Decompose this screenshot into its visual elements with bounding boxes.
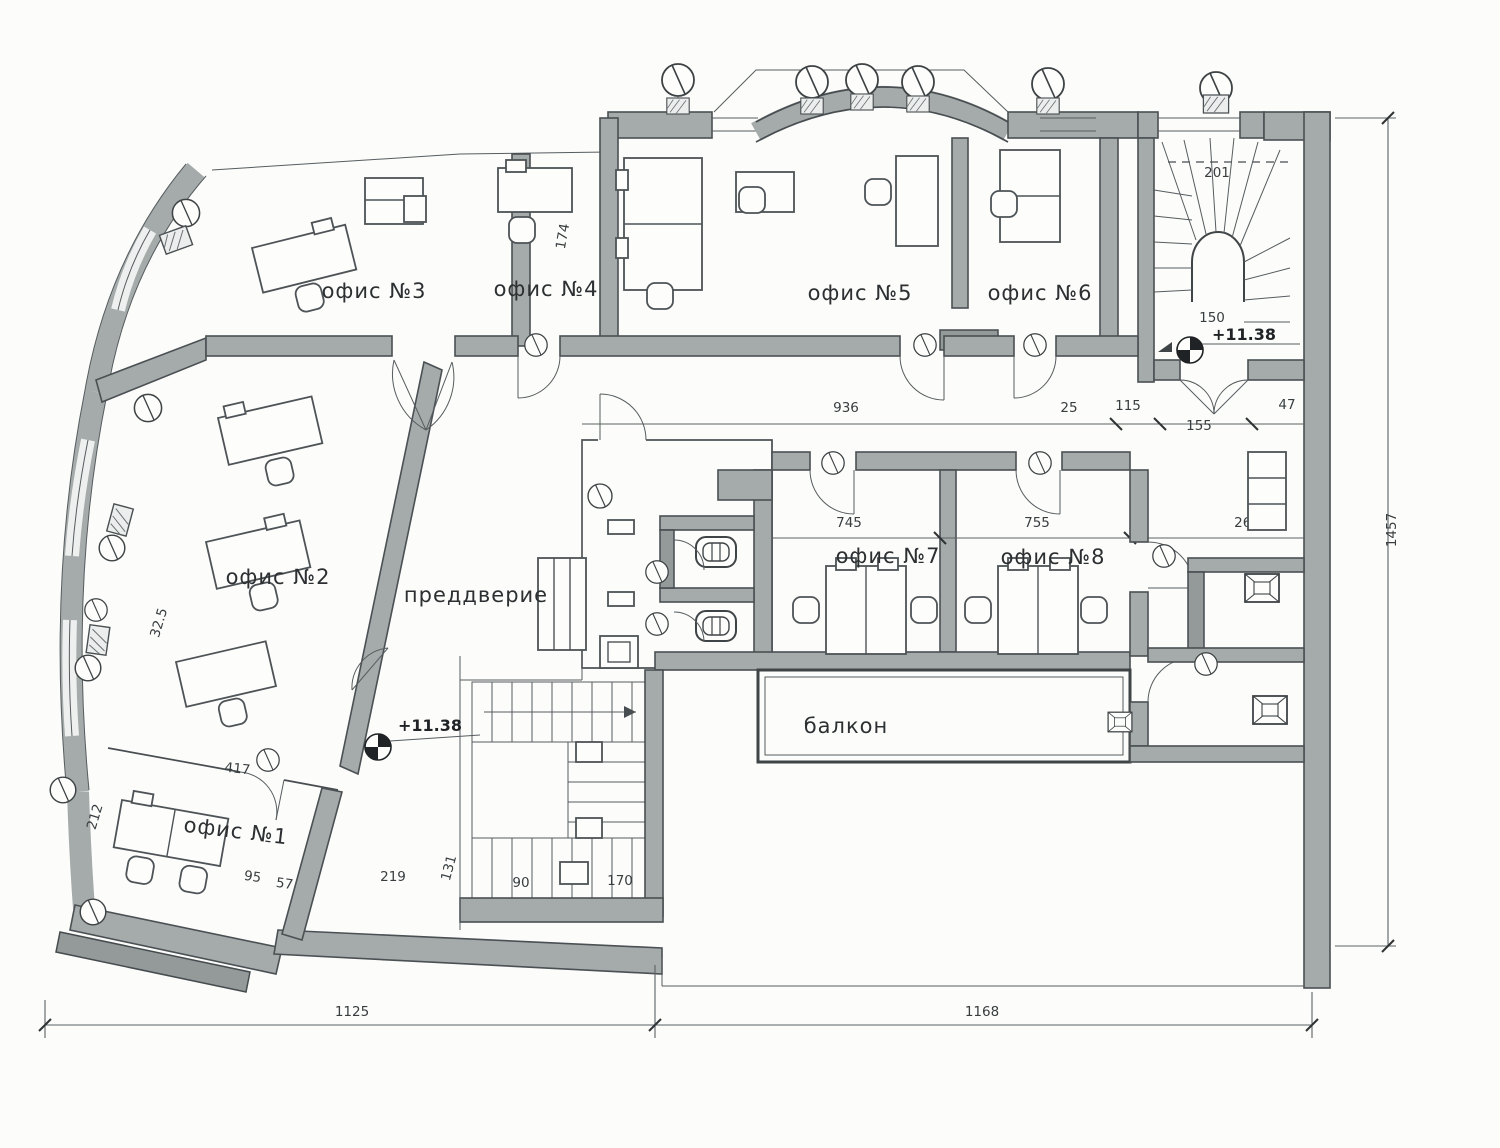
dim-bottom-right: 1168 xyxy=(965,1004,999,1020)
equipment-icon xyxy=(1108,712,1132,732)
grid-marker-icon xyxy=(1024,334,1046,356)
office1-wing: 417 212 95 57 xyxy=(50,748,342,940)
grid-marker-icon xyxy=(80,899,106,925)
right-wing xyxy=(1108,452,1304,762)
dim-stair-150: 150 xyxy=(1199,310,1225,326)
chair-icon xyxy=(865,179,891,205)
grid-marker-icon xyxy=(646,561,668,583)
room-label-balcony: балкон xyxy=(804,714,889,738)
dim-office7-width: 745 xyxy=(836,515,862,531)
chair-icon xyxy=(793,597,819,623)
elevation-hall-label: +11.38 xyxy=(398,716,462,735)
chair-icon xyxy=(509,217,535,243)
dim-174: 174 xyxy=(553,222,573,250)
floor-plan-drawing: 201 150 +11.38 936 25 115 155 47 xyxy=(0,0,1500,1148)
toilet-icon xyxy=(696,537,736,567)
wc-block xyxy=(582,394,772,668)
offices-7-8: 745 755 262 xyxy=(525,334,1304,670)
dim-bottom-left: 1125 xyxy=(335,1004,369,1020)
dim-155: 155 xyxy=(1186,418,1212,434)
grid-marker-icon xyxy=(914,334,936,356)
dim-office8-width: 755 xyxy=(1024,515,1050,531)
equipment-icon xyxy=(1245,574,1279,602)
chair-icon xyxy=(264,456,295,487)
room-label-vestibule: преддверие xyxy=(404,583,548,607)
room-label-office4: офис №4 xyxy=(494,277,599,301)
chair-icon xyxy=(1081,597,1107,623)
elevation-mark-icon xyxy=(1177,337,1203,363)
room-label-office6: офис №6 xyxy=(988,281,1093,305)
grid-marker-icon xyxy=(50,777,76,803)
grid-marker-icon xyxy=(1029,452,1051,474)
dim-47: 47 xyxy=(1278,397,1295,413)
grid-marker-icon xyxy=(1153,545,1175,567)
dim-stair-201: 201 xyxy=(1204,165,1230,181)
equipment-icon xyxy=(1253,696,1287,724)
chair-icon xyxy=(991,191,1017,217)
dim-131: 131 xyxy=(438,853,460,882)
grid-marker-icon xyxy=(75,655,101,681)
grid-marker-icon xyxy=(822,452,844,474)
chair-icon xyxy=(965,597,991,623)
hall-elevation-mark: +11.38 xyxy=(365,716,480,760)
floor-plan-canvas: 201 150 +11.38 936 25 115 155 47 xyxy=(0,0,1500,1148)
chair-icon xyxy=(911,597,937,623)
room-labels: офис №3 офис №4 офис №5 офис №6 офис №2 … xyxy=(182,277,1105,849)
toilet-icon xyxy=(696,611,736,641)
column-icon xyxy=(86,625,110,656)
dim-417: 417 xyxy=(224,760,251,779)
room-label-office2: офис №2 xyxy=(226,565,331,589)
grid-marker-icon xyxy=(1195,653,1217,675)
chair-icon xyxy=(178,865,208,895)
room-label-office3: офис №3 xyxy=(322,279,427,303)
dim-right-vertical: 1457 xyxy=(1384,513,1400,547)
elevation-stair-label: +11.38 xyxy=(1212,325,1276,344)
grid-marker-icon xyxy=(134,394,161,421)
dim-115: 115 xyxy=(1115,398,1141,414)
dim-170: 170 xyxy=(607,873,633,889)
room-label-office7: офис №7 xyxy=(836,544,941,568)
winding-staircase: 201 150 +11.38 xyxy=(1154,138,1300,363)
dim-90: 90 xyxy=(512,875,529,891)
dim-57: 57 xyxy=(275,875,294,893)
dim-32-5: 32.5 xyxy=(147,606,171,639)
grid-marker-icon xyxy=(525,334,547,356)
chair-icon xyxy=(647,283,673,309)
column-icon xyxy=(107,504,134,536)
grid-marker-icon xyxy=(257,749,279,771)
room-label-office5: офис №5 xyxy=(808,281,913,305)
dim-corridor-936: 936 xyxy=(833,400,859,416)
chair-icon xyxy=(217,697,248,728)
grid-marker-icon xyxy=(99,535,125,561)
grid-marker-icon xyxy=(646,613,668,635)
chair-icon xyxy=(739,187,765,213)
dim-25: 25 xyxy=(1060,400,1077,416)
grid-marker-icon xyxy=(85,599,107,621)
grid-marker-icon xyxy=(172,199,199,226)
dim-95: 95 xyxy=(243,868,262,886)
chair-icon xyxy=(125,855,155,885)
room-label-office8: офис №8 xyxy=(1001,545,1106,569)
corridor-dimension-line: 936 25 115 155 47 xyxy=(582,397,1304,434)
elevation-mark-icon xyxy=(365,734,391,760)
grid-marker-icon xyxy=(588,484,612,508)
bottom-staircase: 219 131 90 170 xyxy=(380,656,663,930)
dim-219: 219 xyxy=(380,869,406,885)
